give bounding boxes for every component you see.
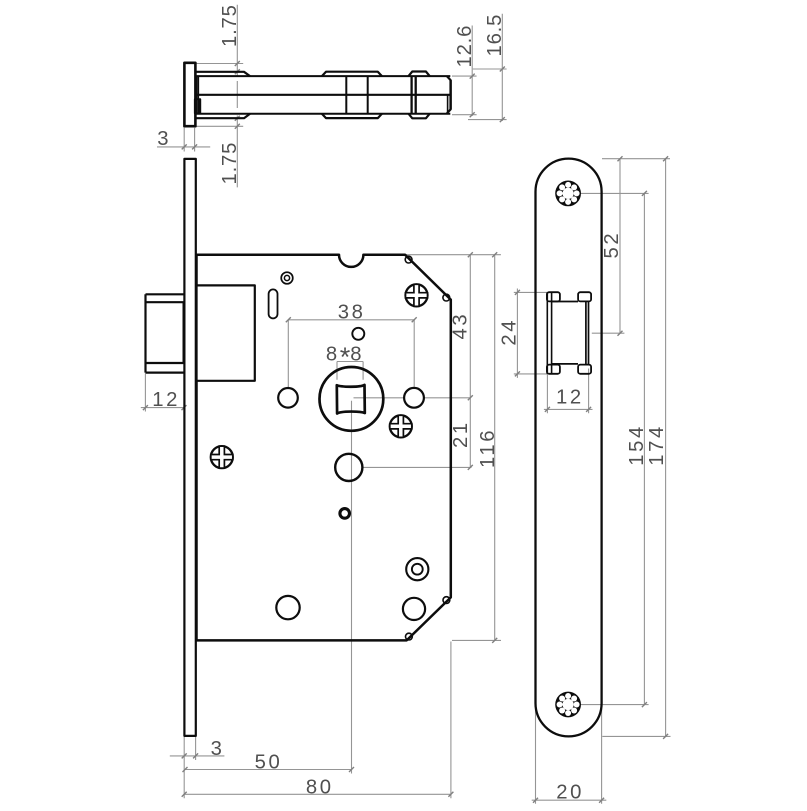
svg-text:50: 50 — [255, 752, 283, 774]
svg-text:20: 20 — [556, 781, 584, 803]
svg-text:24: 24 — [499, 318, 521, 346]
svg-text:12: 12 — [152, 389, 180, 411]
svg-text:43: 43 — [450, 312, 472, 340]
svg-text:38: 38 — [338, 302, 366, 324]
svg-text:21: 21 — [450, 420, 472, 448]
svg-text:52: 52 — [601, 231, 623, 259]
svg-text:1.75: 1.75 — [219, 142, 241, 185]
svg-text:1.75: 1.75 — [219, 4, 241, 47]
svg-text:174: 174 — [646, 424, 668, 466]
svg-text:154: 154 — [626, 424, 648, 466]
svg-text:12.6: 12.6 — [454, 25, 476, 68]
svg-text:116: 116 — [477, 428, 499, 468]
svg-text:3: 3 — [157, 128, 171, 150]
svg-text:80: 80 — [306, 777, 334, 799]
svg-text:12: 12 — [556, 387, 584, 409]
svg-text:3: 3 — [211, 738, 225, 760]
svg-text:16.5: 16.5 — [484, 14, 506, 57]
